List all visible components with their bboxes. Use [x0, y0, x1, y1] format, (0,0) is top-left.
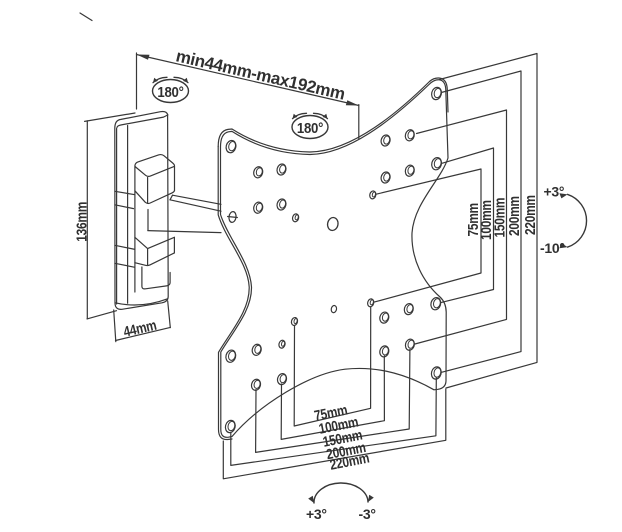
svg-text:-10°: -10°	[540, 240, 565, 256]
svg-text:180°: 180°	[297, 119, 324, 136]
svg-text:44mm: 44mm	[122, 317, 158, 340]
svg-text:min44mm-max192mm: min44mm-max192mm	[174, 46, 347, 103]
svg-text:-3°: -3°	[359, 506, 376, 522]
svg-text:136mm: 136mm	[73, 202, 89, 242]
svg-text:+3°: +3°	[306, 506, 327, 522]
svg-text:220mm: 220mm	[522, 195, 538, 235]
svg-text:+3°: +3°	[544, 184, 565, 200]
svg-text:180°: 180°	[157, 83, 184, 100]
svg-text:200mm: 200mm	[506, 196, 522, 236]
